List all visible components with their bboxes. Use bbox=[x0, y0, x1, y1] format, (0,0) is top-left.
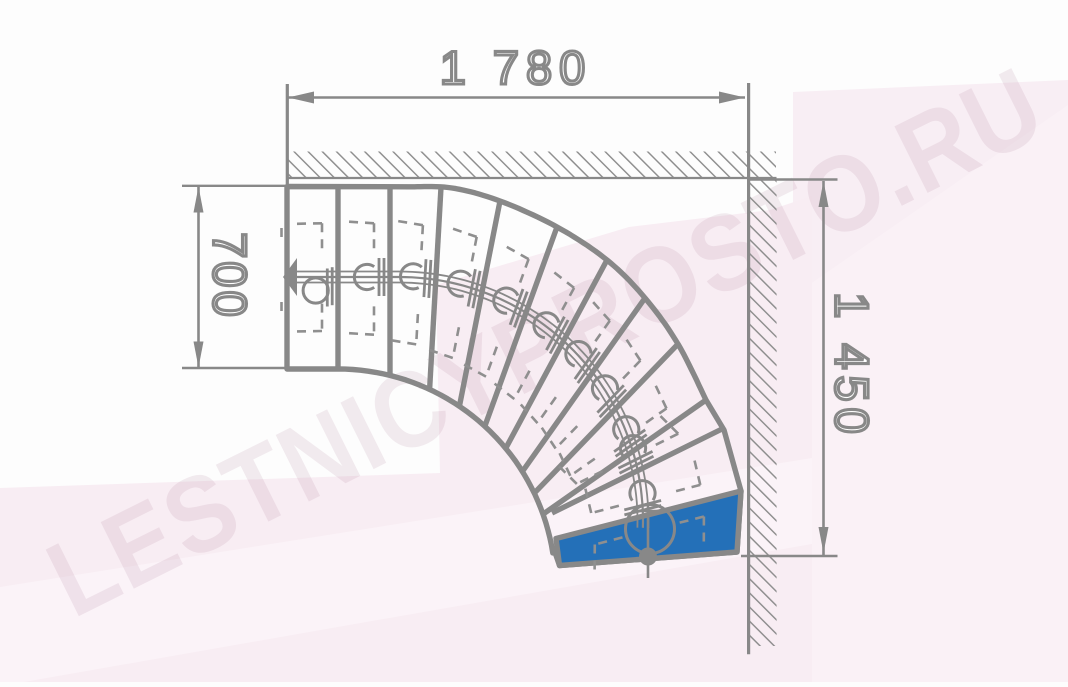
svg-text:700: 700 bbox=[204, 232, 257, 319]
svg-text:1 780: 1 780 bbox=[440, 41, 593, 94]
svg-text:1 450: 1 450 bbox=[826, 292, 879, 440]
